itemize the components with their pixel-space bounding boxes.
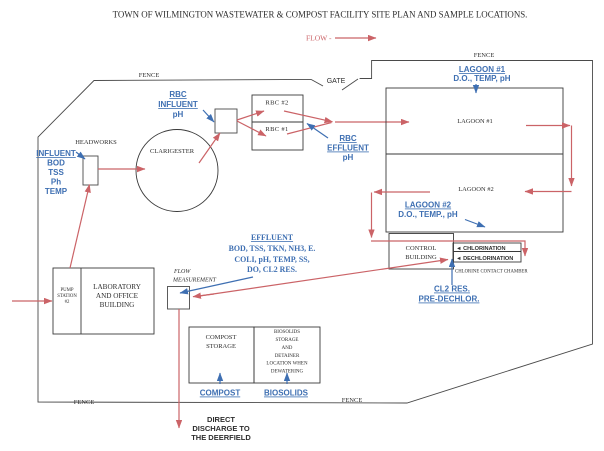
svg-text:BUILDING: BUILDING xyxy=(405,254,437,261)
svg-text:GATE: GATE xyxy=(327,78,346,85)
svg-text:DIRECT: DIRECT xyxy=(207,415,235,424)
svg-text:Ph: Ph xyxy=(51,178,61,187)
svg-text:RBC #1: RBC #1 xyxy=(265,126,288,133)
svg-text:FENCE: FENCE xyxy=(474,52,495,59)
svg-text:STORAGE: STORAGE xyxy=(206,343,236,350)
svg-text:INFLUENT: INFLUENT xyxy=(36,149,76,158)
svg-text:RBC #2: RBC #2 xyxy=(265,100,288,107)
svg-text:pH: pH xyxy=(343,153,354,162)
svg-text:AND: AND xyxy=(282,346,293,351)
svg-text:TSS: TSS xyxy=(48,168,64,177)
svg-text:DISCHARGE TO: DISCHARGE TO xyxy=(192,424,250,433)
svg-text:D.O., TEMP, pH: D.O., TEMP, pH xyxy=(453,74,510,83)
svg-text:STORAGE: STORAGE xyxy=(276,338,299,343)
svg-text:AND OFFICE: AND OFFICE xyxy=(96,292,139,300)
svg-text:#2: #2 xyxy=(65,300,70,305)
svg-text:HEADWORKS: HEADWORKS xyxy=(75,139,117,146)
svg-text:RBC: RBC xyxy=(169,90,187,99)
svg-text:COMPOST: COMPOST xyxy=(206,334,237,341)
svg-text:◄ CHLORINATION: ◄ CHLORINATION xyxy=(456,246,506,252)
svg-text:CLARIGESTER: CLARIGESTER xyxy=(150,148,195,155)
svg-text:MEASUREMENT: MEASUREMENT xyxy=(172,278,217,284)
svg-text:FLOW: FLOW xyxy=(173,269,191,275)
svg-text:DETAINER: DETAINER xyxy=(275,354,300,359)
svg-text:CHLORINE CONTACT CHAMBER: CHLORINE CONTACT CHAMBER xyxy=(455,270,528,275)
svg-text:pH: pH xyxy=(173,110,184,119)
svg-text:BOD, TSS, TKN, NH3, E.: BOD, TSS, TKN, NH3, E. xyxy=(229,244,316,253)
svg-text:INFLUENT: INFLUENT xyxy=(158,100,198,109)
svg-text:FENCE: FENCE xyxy=(139,72,160,79)
svg-text:◄ DECHLORINATION: ◄ DECHLORINATION xyxy=(456,256,513,262)
svg-text:BIOSOLIDS: BIOSOLIDS xyxy=(274,330,300,335)
svg-text:DO, CL2 RES.: DO, CL2 RES. xyxy=(247,265,297,274)
svg-text:LABORATORY: LABORATORY xyxy=(93,283,142,291)
svg-text:EFFLUENT: EFFLUENT xyxy=(327,144,369,153)
svg-text:LAGOON #2: LAGOON #2 xyxy=(458,186,494,193)
svg-text:BUILDING: BUILDING xyxy=(100,301,135,309)
svg-text:EFFLUENT: EFFLUENT xyxy=(251,233,294,242)
svg-text:COMPOST: COMPOST xyxy=(200,389,241,398)
svg-text:FENCE: FENCE xyxy=(74,399,95,406)
svg-text:RBC: RBC xyxy=(339,134,357,143)
svg-text:COLI, pH, TEMP, SS,: COLI, pH, TEMP, SS, xyxy=(234,255,309,264)
svg-text:BIOSOLIDS: BIOSOLIDS xyxy=(264,389,309,398)
svg-text:PRE-DECHLOR.: PRE-DECHLOR. xyxy=(419,295,480,304)
svg-text:STATION: STATION xyxy=(57,294,77,299)
svg-text:PUMP: PUMP xyxy=(60,288,73,293)
svg-text:BOD: BOD xyxy=(47,159,65,168)
svg-text:TEMP: TEMP xyxy=(45,187,68,196)
svg-text:LAGOON #1: LAGOON #1 xyxy=(457,118,493,125)
svg-text:CONTROL: CONTROL xyxy=(406,245,437,252)
svg-text:D.O., TEMP., pH: D.O., TEMP., pH xyxy=(398,210,458,219)
svg-text:FENCE: FENCE xyxy=(342,397,363,404)
svg-text:TOWN OF WILMINGTON WASTEWATER: TOWN OF WILMINGTON WASTEWATER & COMPOST … xyxy=(113,10,528,20)
svg-text:LOCATION WHEN: LOCATION WHEN xyxy=(266,362,308,367)
svg-text:FLOW -: FLOW - xyxy=(306,34,332,43)
svg-text:LAGOON #1: LAGOON #1 xyxy=(459,65,506,74)
svg-text:LAGOON #2: LAGOON #2 xyxy=(405,201,452,210)
svg-text:CL2 RES.: CL2 RES. xyxy=(434,285,470,294)
svg-text:THE DEERFIELD: THE DEERFIELD xyxy=(191,433,251,442)
